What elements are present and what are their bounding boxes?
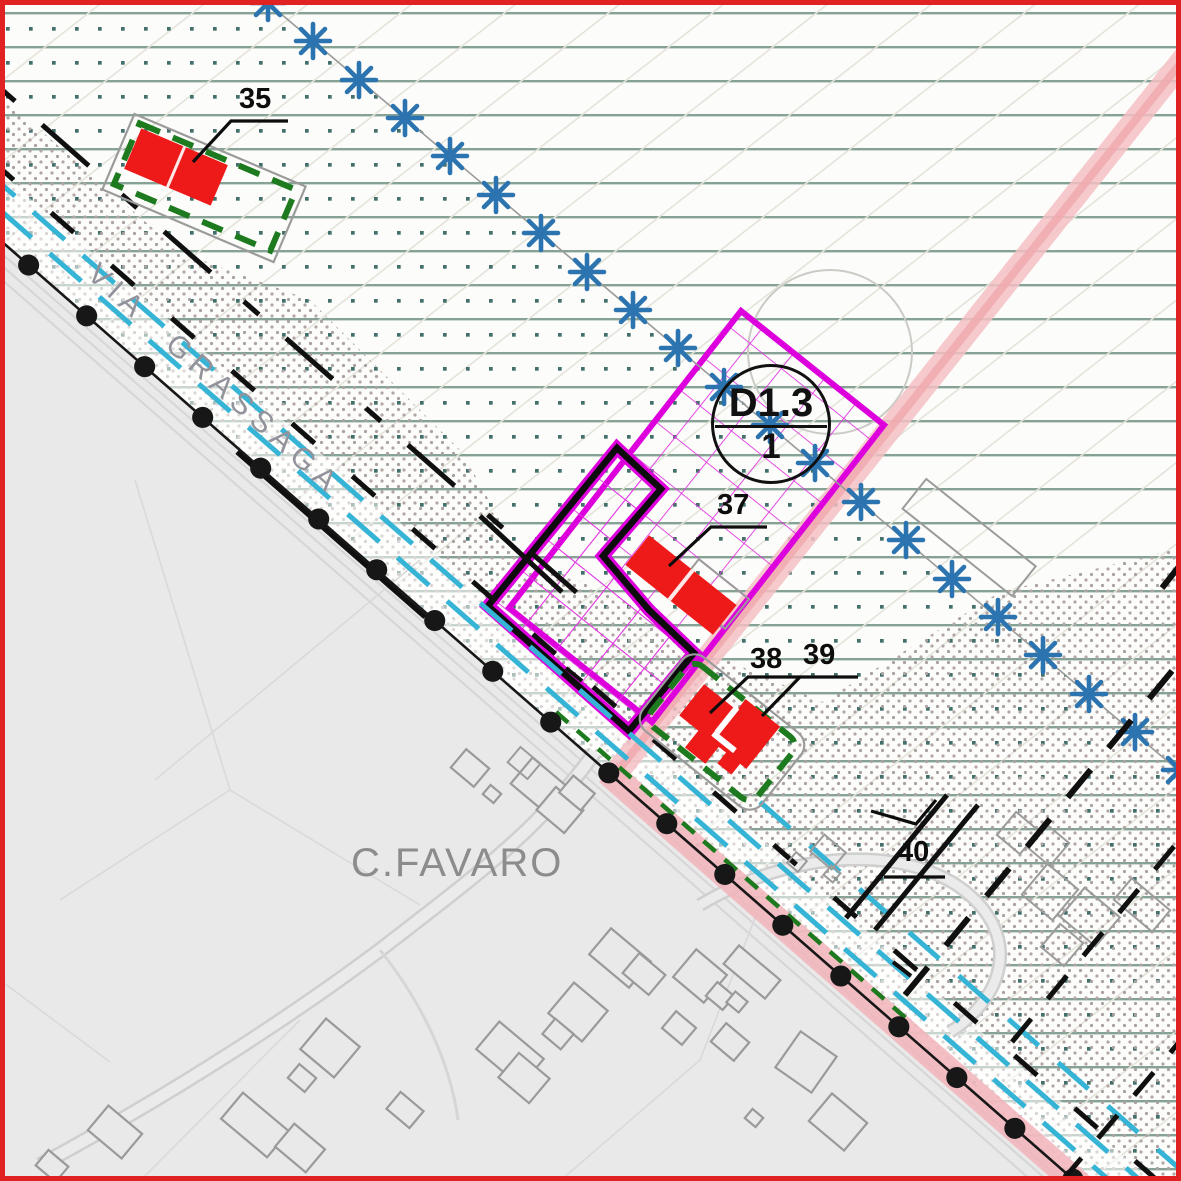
label-building-38: 38 <box>750 645 782 674</box>
zone-badge-d13: D1.3 1 <box>711 364 831 484</box>
zone-index: 1 <box>761 429 780 466</box>
label-building-35: 35 <box>239 85 271 114</box>
label-building-39: 39 <box>803 641 835 670</box>
label-building-40: 40 <box>897 838 929 867</box>
zoning-map: 35 37 38 39 40 D1.3 1 VIA GRASSAGA C.FAV… <box>0 0 1181 1181</box>
map-canvas <box>0 0 1181 1181</box>
label-building-37: 37 <box>717 491 749 520</box>
zone-code: D1.3 <box>729 382 814 424</box>
locality-name: C.FAVARO <box>351 841 563 886</box>
